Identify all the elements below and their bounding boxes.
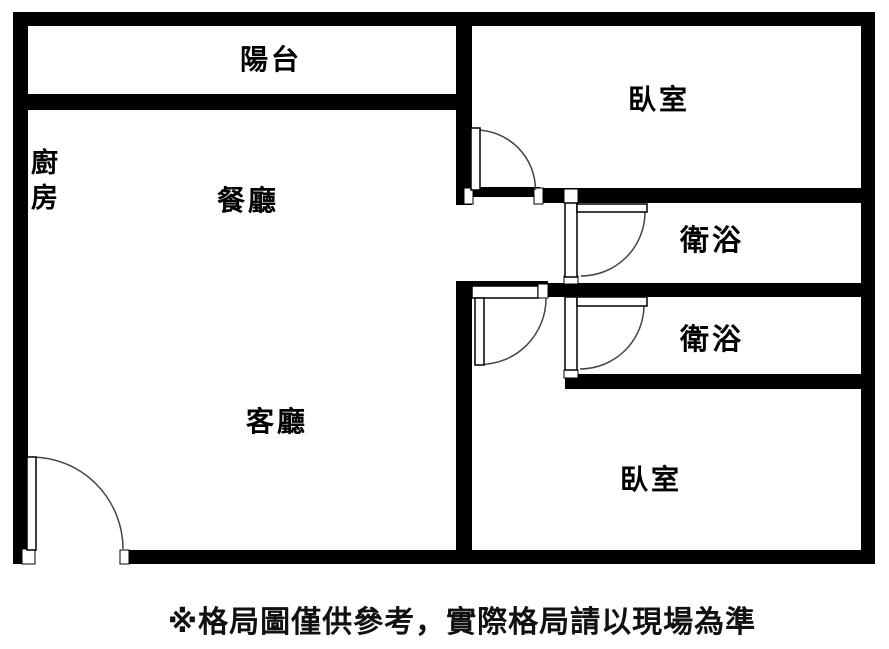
wall-bedroom-top-bottom: [543, 188, 875, 203]
wall-central-upper: [456, 25, 472, 205]
bathroom-lower-door-jamb-bottom: [564, 370, 578, 378]
bedroom-top-door-lintel: [473, 187, 540, 197]
wall-top: [13, 12, 875, 26]
entry-door-panel: [27, 457, 36, 550]
room-label-balcony: 陽台: [240, 44, 302, 76]
hallway-door-panel-closed: [472, 286, 538, 298]
floor-plan-drawing: [0, 0, 889, 649]
hallway-door-arc: [480, 298, 547, 365]
bedroom-top-door-arc: [476, 130, 536, 190]
bathroom-lower-door-panel-closed: [565, 297, 577, 370]
disclaimer-text: ※格局圖僅供參考，實際格局請以現場為準: [168, 597, 756, 641]
room-label-kitchen: 廚房: [31, 146, 63, 216]
wall-bathroom-lower-bottom: [565, 374, 875, 389]
floor-plan: 陽台 廚房 餐廳 客廳 臥室 衛浴 衛浴 臥室 ※格局圖僅供參考，實際格局請以現…: [0, 0, 889, 649]
wall-bottom-stub: [13, 550, 22, 564]
entry-door-jamb-right: [120, 550, 129, 564]
bathroom-upper-door-panel-closed: [565, 203, 577, 277]
bathroom-lower-door: [564, 297, 647, 378]
bedroom-top-door-panel: [471, 128, 480, 190]
room-label-dining-room: 餐廳: [217, 185, 279, 217]
entry-door-arc: [32, 457, 124, 549]
bedroom-top-door: [464, 128, 543, 204]
wall-bottom: [128, 550, 875, 564]
entry-door: [22, 457, 129, 564]
entry-door-jamb-left: [22, 549, 35, 564]
room-label-bathroom-lower: 衛浴: [680, 324, 744, 357]
wall-left: [13, 12, 28, 564]
hallway-door-jamb: [538, 284, 548, 298]
hallway-door-panel-open: [475, 298, 484, 365]
room-label-bedroom-bottom: 臥室: [620, 464, 682, 496]
interior-walls: [28, 25, 875, 564]
bathroom-lower-door-arc: [580, 305, 644, 369]
room-label-bedroom-top: 臥室: [628, 84, 690, 116]
bathroom-upper-door-arc: [581, 212, 645, 276]
bathroom-upper-door: [564, 189, 647, 284]
bedroom-top-door-jamb-right: [534, 188, 543, 204]
bathroom-upper-door-jamb-top: [564, 189, 578, 203]
room-label-living-room: 客廳: [246, 406, 308, 438]
bathroom-upper-door-panel-open: [577, 204, 647, 212]
bathroom-lower-door-panel-open: [577, 297, 647, 306]
wall-balcony: [28, 94, 458, 110]
wall-between-bathrooms: [548, 283, 875, 297]
room-label-bathroom-upper: 衛浴: [680, 225, 744, 258]
wall-central-lower: [456, 281, 472, 564]
